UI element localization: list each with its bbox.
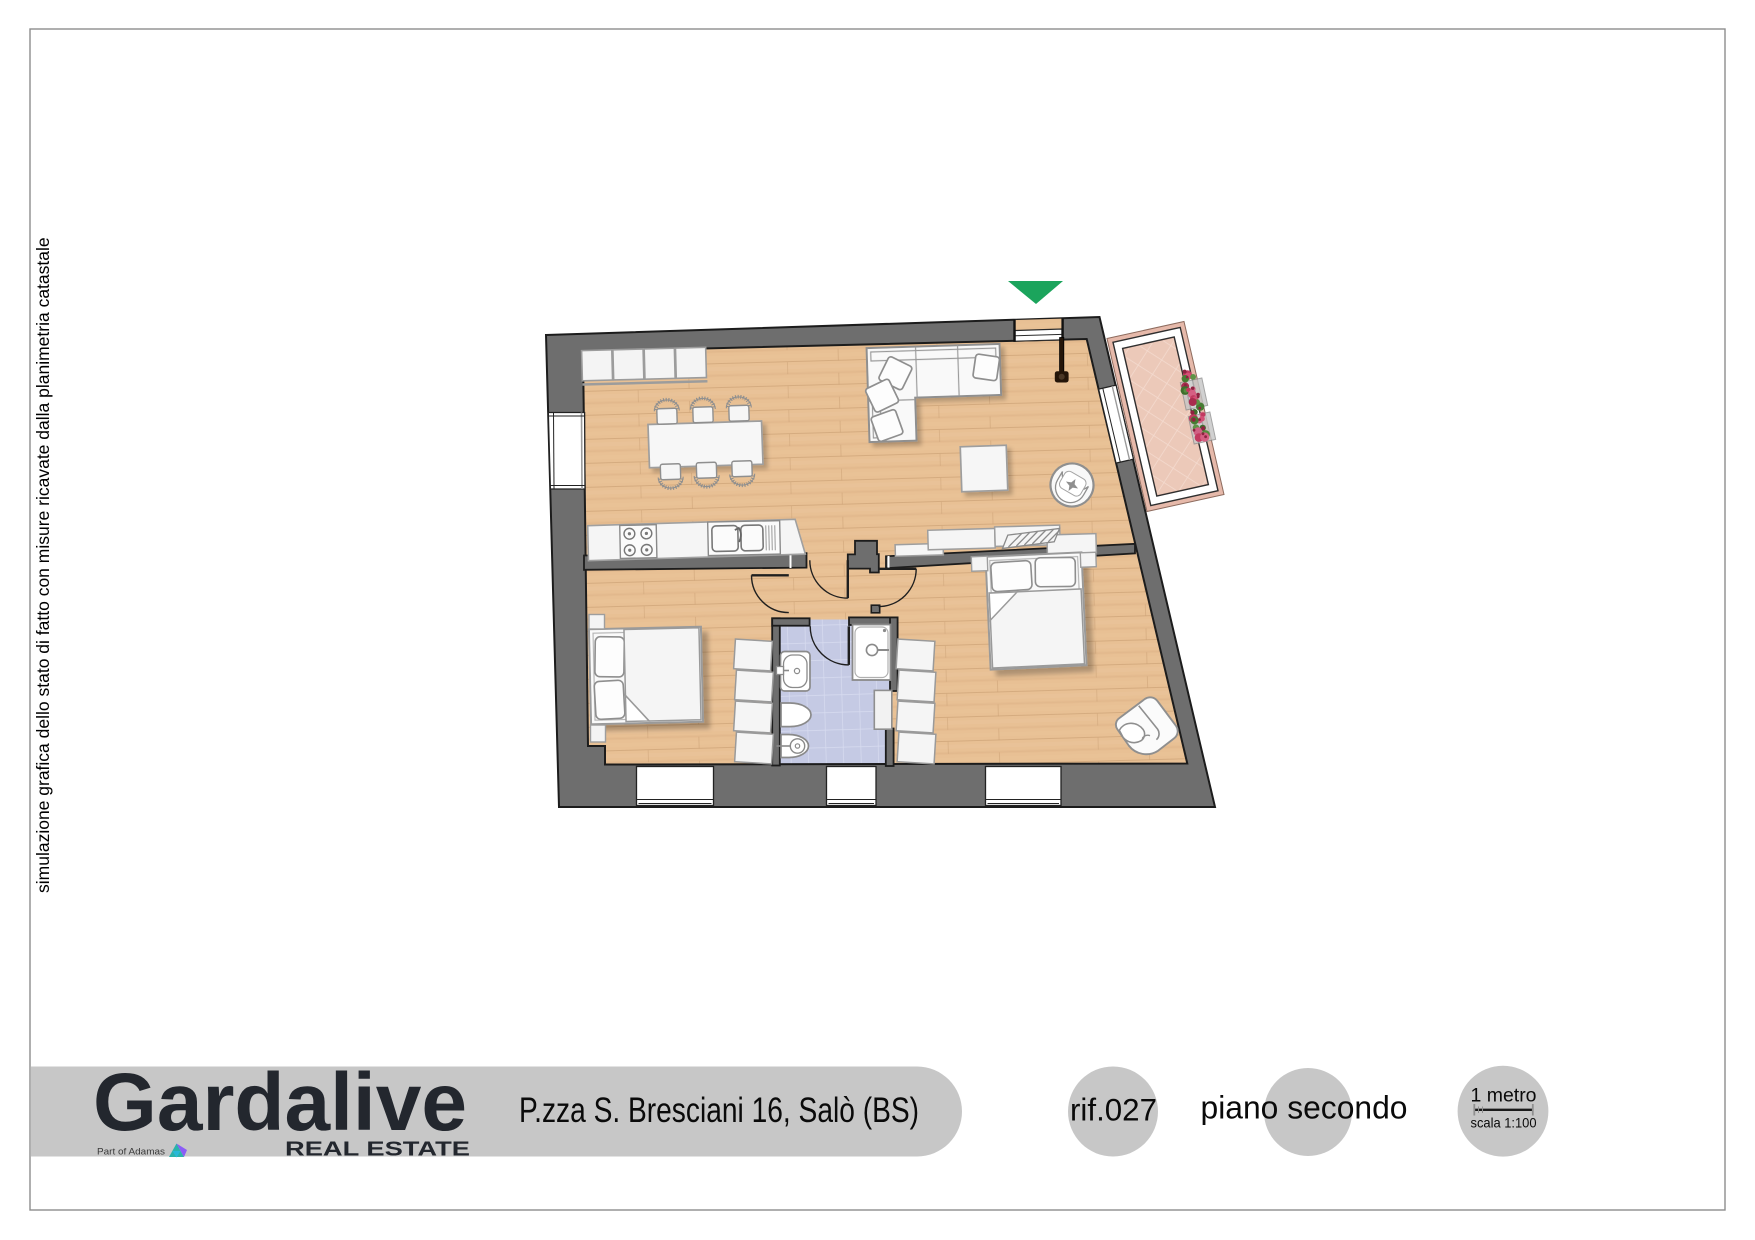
svg-text:simulazione grafica dello stat: simulazione grafica dello stato di fatto… [33, 237, 53, 893]
svg-text:scala 1:100: scala 1:100 [1471, 1115, 1537, 1131]
svg-text:REAL ESTATE: REAL ESTATE [285, 1139, 470, 1161]
svg-text:piano secondo: piano secondo [1201, 1090, 1408, 1126]
svg-text:Gardalive: Gardalive [93, 1057, 467, 1148]
svg-text:P.zza S. Bresciani 16, Salò (B: P.zza S. Bresciani 16, Salò (BS) [519, 1091, 919, 1130]
svg-text:1 metro: 1 metro [1471, 1085, 1537, 1107]
svg-text:rif.027: rif.027 [1070, 1092, 1157, 1128]
svg-text:Part of Adamas: Part of Adamas [97, 1147, 165, 1158]
